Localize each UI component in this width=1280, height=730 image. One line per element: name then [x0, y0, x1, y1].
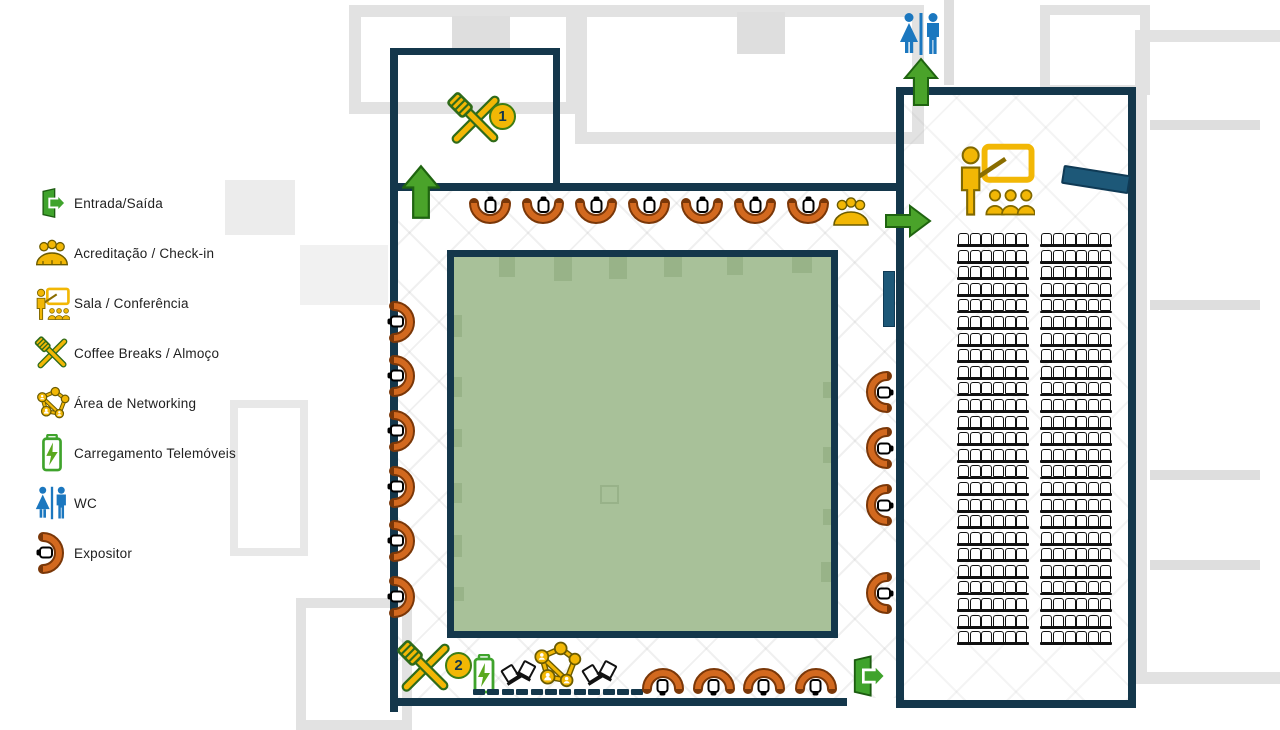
coffee-break-icon [30, 335, 74, 371]
networking-table [473, 689, 485, 695]
seat [958, 532, 969, 544]
seat [1041, 266, 1052, 278]
seat [1053, 233, 1064, 245]
seat [1065, 266, 1076, 278]
seat [1005, 598, 1016, 610]
exhibitor-stand-top [468, 196, 512, 228]
seat [1065, 482, 1076, 494]
seat [1016, 333, 1027, 345]
seat [981, 515, 992, 527]
seat [958, 299, 969, 311]
seat [1076, 631, 1087, 643]
seat [958, 349, 969, 361]
seat [958, 482, 969, 494]
seat [1041, 250, 1052, 262]
legend-label: Entrada/Saída [74, 196, 163, 211]
seat [1065, 382, 1076, 394]
seat [1041, 416, 1052, 428]
seat [993, 615, 1004, 627]
seat [1016, 316, 1027, 328]
seat [1005, 499, 1016, 511]
exhibitor-stand-bottom [742, 664, 786, 696]
seat [1016, 548, 1027, 560]
seat [1100, 499, 1111, 511]
seat [1016, 598, 1027, 610]
seat [1041, 333, 1052, 345]
seat [1076, 382, 1087, 394]
seat [970, 615, 981, 627]
seat [1088, 548, 1099, 560]
seat [1005, 465, 1016, 477]
exhibitor-stand-bottom [641, 664, 685, 696]
seat [958, 615, 969, 627]
checkin-desk-icon [829, 196, 873, 228]
seat [1088, 432, 1099, 444]
seat [958, 548, 969, 560]
seat [981, 399, 992, 411]
legend: Entrada/Saída Acreditação / Check-in [30, 178, 236, 578]
seat [1088, 299, 1099, 311]
seat [1005, 631, 1016, 643]
seat [1100, 432, 1111, 444]
seat [993, 515, 1004, 527]
seat [1100, 283, 1111, 295]
seat [1005, 382, 1016, 394]
seat-row [958, 499, 1111, 511]
seat [1088, 449, 1099, 461]
seat [993, 283, 1004, 295]
seat [993, 366, 1004, 378]
exhibitor-stand-right [862, 370, 894, 414]
legend-item-coffee: Coffee Breaks / Almoço [30, 328, 236, 378]
seat [1065, 515, 1076, 527]
seat [1053, 515, 1064, 527]
networking-table [531, 689, 543, 695]
seat [958, 499, 969, 511]
networking-table [516, 689, 528, 695]
exhibitor-stand-top [680, 196, 724, 228]
conference-seating [958, 233, 1111, 648]
seat [970, 432, 981, 444]
seat [1041, 581, 1052, 593]
seat [1065, 366, 1076, 378]
seat [1065, 299, 1076, 311]
networking-table [588, 689, 600, 695]
legend-item-wc: WC [30, 478, 236, 528]
seat [1041, 532, 1052, 544]
seat [1005, 333, 1016, 345]
seat [1088, 333, 1099, 345]
seat [1076, 283, 1087, 295]
seat [1041, 399, 1052, 411]
seat [1005, 399, 1016, 411]
seat [1053, 416, 1064, 428]
seat [1076, 432, 1087, 444]
seat-row [958, 283, 1111, 295]
seat [1005, 432, 1016, 444]
seat [970, 499, 981, 511]
seat [1100, 416, 1111, 428]
seat [1088, 515, 1099, 527]
seat [1016, 233, 1027, 245]
seat [981, 432, 992, 444]
seat [1088, 465, 1099, 477]
networking-table [545, 689, 557, 695]
seat [1065, 283, 1076, 295]
seat [1100, 631, 1111, 643]
seat [970, 449, 981, 461]
entrance-exit-icon [30, 186, 74, 220]
seat [981, 333, 992, 345]
seat [981, 299, 992, 311]
seat [1005, 532, 1016, 544]
seat [1076, 399, 1087, 411]
seat [1088, 482, 1099, 494]
seat [970, 266, 981, 278]
seat-row [958, 449, 1111, 461]
seat [1041, 283, 1052, 295]
networking-table [574, 689, 586, 695]
seat [1065, 233, 1076, 245]
seat [981, 565, 992, 577]
seat [1100, 349, 1111, 361]
seat [1100, 548, 1111, 560]
legend-item-conference: Sala / Conferência [30, 278, 236, 328]
seat [1076, 266, 1087, 278]
seat [1065, 349, 1076, 361]
seat [1088, 581, 1099, 593]
seat [1016, 266, 1027, 278]
wc-icon [30, 486, 74, 520]
seat [1005, 299, 1016, 311]
networking-icon [30, 385, 74, 421]
wc-arrow-up-icon [902, 57, 940, 107]
exhibitor-stand-left [387, 465, 419, 509]
checkin-icon [30, 238, 74, 268]
seat [1088, 283, 1099, 295]
seat [993, 416, 1004, 428]
seat [981, 548, 992, 560]
center-shared-wall [896, 87, 904, 708]
seat [981, 615, 992, 627]
seat [1100, 465, 1111, 477]
seat [1041, 449, 1052, 461]
seat [970, 349, 981, 361]
seat-row [958, 316, 1111, 328]
seat [1100, 316, 1111, 328]
seat-row [958, 581, 1111, 593]
seat [1016, 283, 1027, 295]
seat [1088, 349, 1099, 361]
seat [1053, 399, 1064, 411]
seat [970, 399, 981, 411]
seat [1065, 548, 1076, 560]
seat [1005, 548, 1016, 560]
conference-arrow-right-icon [884, 203, 932, 239]
seat [1005, 416, 1016, 428]
seat [981, 598, 992, 610]
seat [1041, 548, 1052, 560]
seat [1100, 565, 1111, 577]
seat-row [958, 482, 1111, 494]
hall-bottom-wall [390, 698, 847, 706]
seat [993, 432, 1004, 444]
seat [1041, 499, 1052, 511]
seat [1053, 465, 1064, 477]
networking-table [502, 689, 514, 695]
seat [1065, 565, 1076, 577]
seat [1076, 416, 1087, 428]
seat [1041, 382, 1052, 394]
seat [970, 598, 981, 610]
seat [1100, 482, 1111, 494]
hall-top-wall [390, 183, 903, 191]
legend-label: Sala / Conferência [74, 296, 189, 311]
seat [993, 333, 1004, 345]
seat [1053, 532, 1064, 544]
seat [993, 250, 1004, 262]
seat [993, 598, 1004, 610]
seat [1041, 598, 1052, 610]
seat [958, 316, 969, 328]
seat [1100, 366, 1111, 378]
seat [1016, 631, 1027, 643]
seat-row [958, 532, 1111, 544]
seat [1076, 515, 1087, 527]
seat [1076, 482, 1087, 494]
seat [1100, 598, 1111, 610]
seat [1076, 465, 1087, 477]
seat [1100, 233, 1111, 245]
networking-table [617, 689, 629, 695]
seat [993, 233, 1004, 245]
seat [1041, 631, 1052, 643]
seat [1076, 499, 1087, 511]
seat [1005, 581, 1016, 593]
coffee-break-2-number: 2 [445, 652, 472, 679]
seat [1016, 449, 1027, 461]
seat [1053, 631, 1064, 643]
seat [1065, 399, 1076, 411]
seat [1005, 283, 1016, 295]
legend-label: Área de Networking [74, 396, 196, 411]
exhibitor-stand-top [574, 196, 618, 228]
seat [1041, 515, 1052, 527]
seat [981, 631, 992, 643]
exhibitor-stand-right [862, 483, 894, 527]
seat [1076, 532, 1087, 544]
seat [1100, 532, 1111, 544]
seat [1005, 266, 1016, 278]
seat [1041, 233, 1052, 245]
seat [981, 449, 992, 461]
coffee-room-right-wall [553, 48, 560, 190]
av-bar [883, 271, 895, 327]
networking-chair [598, 660, 617, 680]
courtyard-center-marker [600, 485, 619, 504]
seat [981, 250, 992, 262]
seat [958, 233, 969, 245]
seat [1088, 366, 1099, 378]
seat [1065, 499, 1076, 511]
seat [993, 482, 1004, 494]
seat [1100, 266, 1111, 278]
seat [1065, 598, 1076, 610]
seat [1088, 250, 1099, 262]
seat [1088, 532, 1099, 544]
seat [981, 316, 992, 328]
seat [1065, 615, 1076, 627]
seat [1041, 432, 1052, 444]
seat [1016, 465, 1027, 477]
seat [1005, 565, 1016, 577]
seat [1016, 399, 1027, 411]
conference-icon [30, 285, 74, 321]
seat [1100, 399, 1111, 411]
seat [1016, 250, 1027, 262]
seat-row [958, 266, 1111, 278]
seat [1016, 299, 1027, 311]
seat [1005, 366, 1016, 378]
seat [970, 416, 981, 428]
exhibitor-stand-left [387, 575, 419, 619]
seat [1088, 233, 1099, 245]
seat [958, 250, 969, 262]
seat [1016, 565, 1027, 577]
seat [993, 449, 1004, 461]
seat-row [958, 366, 1111, 378]
seat [958, 366, 969, 378]
seat [993, 382, 1004, 394]
seat [1053, 565, 1064, 577]
seat-row [958, 515, 1111, 527]
seat [993, 349, 1004, 361]
seat [1076, 449, 1087, 461]
seat [1065, 432, 1076, 444]
seat [981, 532, 992, 544]
seat [970, 631, 981, 643]
seat [1076, 233, 1087, 245]
seat [1088, 399, 1099, 411]
seat [970, 366, 981, 378]
seat [993, 399, 1004, 411]
seat [1053, 283, 1064, 295]
seat [981, 482, 992, 494]
seat [1016, 515, 1027, 527]
seat [1005, 316, 1016, 328]
seat [1041, 482, 1052, 494]
seat [958, 416, 969, 428]
seat [993, 266, 1004, 278]
seat [1053, 316, 1064, 328]
seat [1065, 581, 1076, 593]
seat-row [958, 565, 1111, 577]
seat [993, 532, 1004, 544]
legend-label: WC [74, 496, 97, 511]
seat-row [958, 299, 1111, 311]
seat [1088, 266, 1099, 278]
seat [993, 631, 1004, 643]
seat [1041, 565, 1052, 577]
seat [958, 631, 969, 643]
seat [981, 416, 992, 428]
seat-row [958, 250, 1111, 262]
conference-presenter-icon [955, 138, 1035, 218]
seat [993, 581, 1004, 593]
seat [1100, 250, 1111, 262]
central-courtyard [447, 250, 838, 638]
conference-bottom-wall [896, 700, 1136, 708]
seat [958, 432, 969, 444]
seat-row [958, 465, 1111, 477]
seat [1041, 349, 1052, 361]
seat [1100, 581, 1111, 593]
seat-row [958, 548, 1111, 560]
seat [1041, 366, 1052, 378]
seat [1005, 482, 1016, 494]
seat [1005, 515, 1016, 527]
seat [1088, 499, 1099, 511]
seat [970, 299, 981, 311]
seat [1076, 299, 1087, 311]
wc-sign-icon [897, 12, 945, 56]
seat [1005, 349, 1016, 361]
seat [970, 250, 981, 262]
podium [1061, 165, 1131, 194]
seat [981, 283, 992, 295]
exhibitor-stand-left [387, 519, 419, 563]
seat [1053, 432, 1064, 444]
seat [970, 581, 981, 593]
seat [970, 515, 981, 527]
seat [981, 233, 992, 245]
seat [1053, 299, 1064, 311]
seat [1053, 349, 1064, 361]
seat [1100, 515, 1111, 527]
exit-door-icon [845, 652, 889, 700]
seat [1065, 631, 1076, 643]
seat [1016, 382, 1027, 394]
seat [1088, 631, 1099, 643]
seat-row [958, 432, 1111, 444]
seat [1076, 349, 1087, 361]
exhibitor-stand-top [627, 196, 671, 228]
legend-label: Acreditação / Check-in [74, 246, 214, 261]
seat [981, 266, 992, 278]
seat [970, 482, 981, 494]
seat [981, 349, 992, 361]
seat [1041, 316, 1052, 328]
seat [958, 266, 969, 278]
seat [970, 548, 981, 560]
seat [1016, 349, 1027, 361]
coffee-break-1-number: 1 [489, 103, 516, 130]
seat [1005, 449, 1016, 461]
seat [1041, 299, 1052, 311]
seat [1100, 615, 1111, 627]
networking-area-icon [530, 638, 582, 692]
seat [1053, 449, 1064, 461]
exhibitor-stand-left [387, 300, 419, 344]
seat [958, 283, 969, 295]
seat [993, 465, 1004, 477]
seat-row [958, 399, 1111, 411]
seat [1065, 250, 1076, 262]
seat [1016, 581, 1027, 593]
seat [1100, 382, 1111, 394]
seat [1100, 449, 1111, 461]
entrance-arrow-up-icon [402, 163, 440, 221]
